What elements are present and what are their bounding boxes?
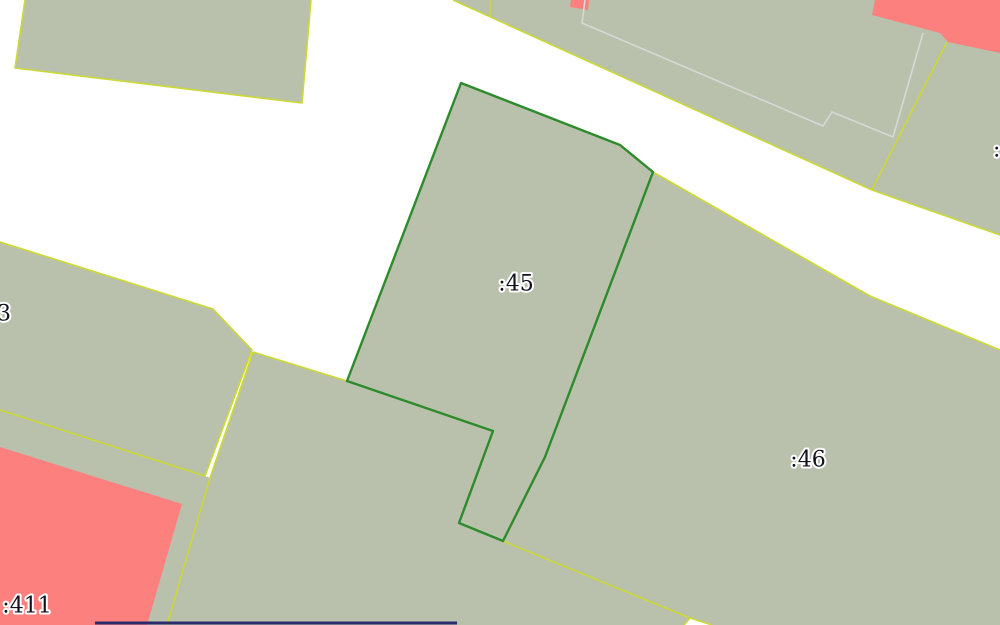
label-right-edge-clipped: : [993,138,1000,163]
cadastral-map-svg[interactable]: :45:46:411:3: [0,0,1000,625]
label-parcel-45: :45 [498,272,533,297]
parcel-top-left[interactable] [15,0,311,103]
label-parcel-46: :46 [790,448,825,473]
map-viewport[interactable]: :45:46:411:3: [0,0,1000,625]
label-parcel-3-clipped: :3 [0,302,11,327]
label-parcel-411: :411 [2,594,51,619]
